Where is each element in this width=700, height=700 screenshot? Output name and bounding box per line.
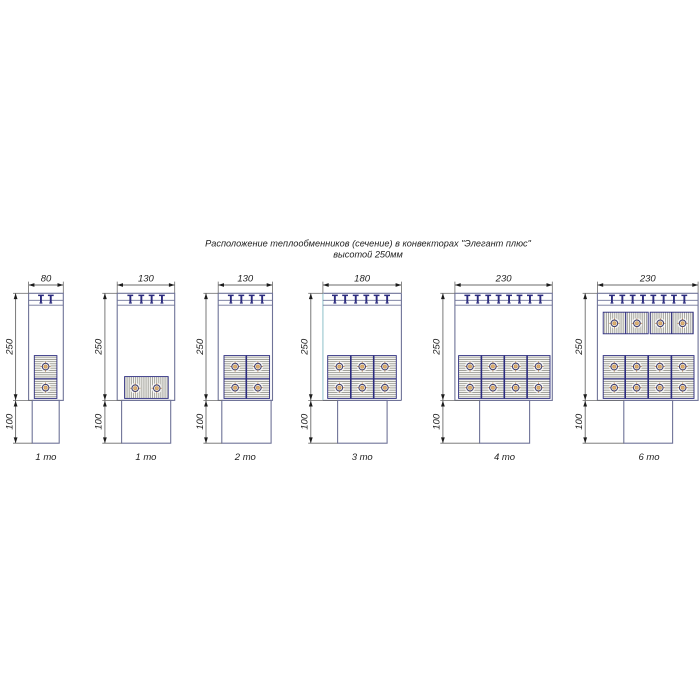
- svg-text:3 то: 3 то: [352, 452, 373, 463]
- svg-text:250: 250: [94, 338, 105, 356]
- svg-text:250: 250: [300, 338, 311, 356]
- svg-text:250: 250: [4, 338, 15, 356]
- svg-text:100: 100: [300, 413, 311, 430]
- svg-text:80: 80: [41, 273, 52, 284]
- svg-text:4 то: 4 то: [494, 452, 515, 463]
- svg-text:1 то: 1 то: [35, 452, 56, 463]
- svg-text:100: 100: [94, 413, 105, 430]
- svg-text:130: 130: [237, 273, 254, 284]
- svg-text:2 то: 2 то: [234, 452, 256, 463]
- svg-text:100: 100: [195, 413, 206, 430]
- svg-text:100: 100: [4, 413, 15, 430]
- svg-text:250: 250: [432, 338, 443, 356]
- svg-text:100: 100: [574, 413, 585, 430]
- svg-text:250: 250: [195, 338, 206, 356]
- svg-text:1 то: 1 то: [135, 452, 156, 463]
- svg-text:Расположение теплообменников (: Расположение теплообменников (сечение) в…: [205, 238, 531, 248]
- svg-text:высотой 250мм: высотой 250мм: [333, 250, 403, 260]
- svg-text:100: 100: [432, 413, 443, 430]
- svg-text:230: 230: [639, 273, 657, 284]
- svg-text:130: 130: [138, 273, 155, 284]
- svg-text:6 то: 6 то: [638, 452, 659, 463]
- svg-text:230: 230: [495, 273, 513, 284]
- svg-text:180: 180: [354, 273, 371, 284]
- svg-text:250: 250: [574, 338, 585, 356]
